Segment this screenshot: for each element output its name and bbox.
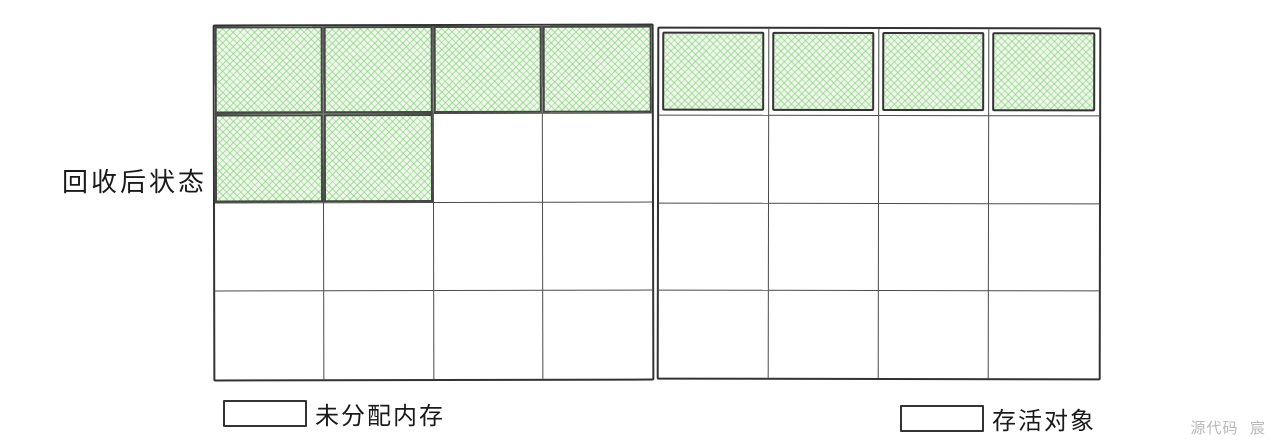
live-object-swatch	[900, 405, 984, 432]
live-object-cell	[324, 26, 433, 114]
free-memory-cell	[769, 203, 879, 290]
free-memory-cell	[659, 203, 769, 290]
live-object-label: 存活对象	[992, 401, 1096, 436]
free-memory-cell	[324, 291, 433, 379]
live-object-box	[772, 32, 874, 111]
free-memory-cell	[434, 202, 543, 290]
free-memory-cell	[543, 290, 652, 378]
free-memory-cell	[989, 204, 1099, 291]
free-memory-cell	[434, 291, 543, 379]
live-object-cell	[433, 26, 542, 114]
live-object-cell	[542, 26, 651, 114]
live-object-cell	[215, 114, 324, 202]
free-memory-cell	[324, 203, 433, 291]
free-memory-cell	[215, 203, 324, 291]
watermark: 源代码 宸	[1190, 417, 1266, 438]
free-memory-cell	[989, 116, 1099, 203]
free-memory-cell	[659, 116, 769, 203]
live-object-cell	[989, 29, 1099, 116]
free-memory-cell	[659, 290, 769, 377]
free-memory-cell	[433, 114, 542, 202]
live-object-box	[662, 32, 764, 111]
free-memory-cell	[989, 291, 1099, 378]
live-object-cell	[769, 29, 879, 116]
free-memory-cell	[543, 114, 652, 202]
free-memory-cell	[215, 291, 324, 379]
heap-block-left	[213, 24, 655, 382]
free-memory-cell	[543, 202, 652, 290]
free-memory-swatch	[223, 400, 307, 427]
free-memory-cell	[769, 291, 879, 378]
memory-diagram-canvas: 回收后状态 未分配内存 存活对象 源代码 宸	[0, 0, 1280, 447]
live-object-box	[882, 32, 984, 111]
free-memory-cell	[879, 291, 989, 378]
live-object-cell	[215, 26, 324, 114]
live-object-cell	[659, 29, 769, 116]
heap-block-right	[657, 27, 1102, 381]
free-memory-cell	[879, 204, 989, 291]
live-object-cell	[879, 29, 989, 116]
free-memory-label: 未分配内存	[315, 396, 445, 431]
diagram-title: 回收后状态	[62, 162, 207, 199]
live-object-cell	[324, 114, 433, 202]
free-memory-cell	[879, 116, 989, 203]
legend-item-free-memory: 未分配内存	[223, 396, 445, 431]
free-memory-cell	[769, 116, 879, 203]
legend-item-live-object: 存活对象	[900, 401, 1096, 436]
live-object-box	[992, 32, 1095, 111]
